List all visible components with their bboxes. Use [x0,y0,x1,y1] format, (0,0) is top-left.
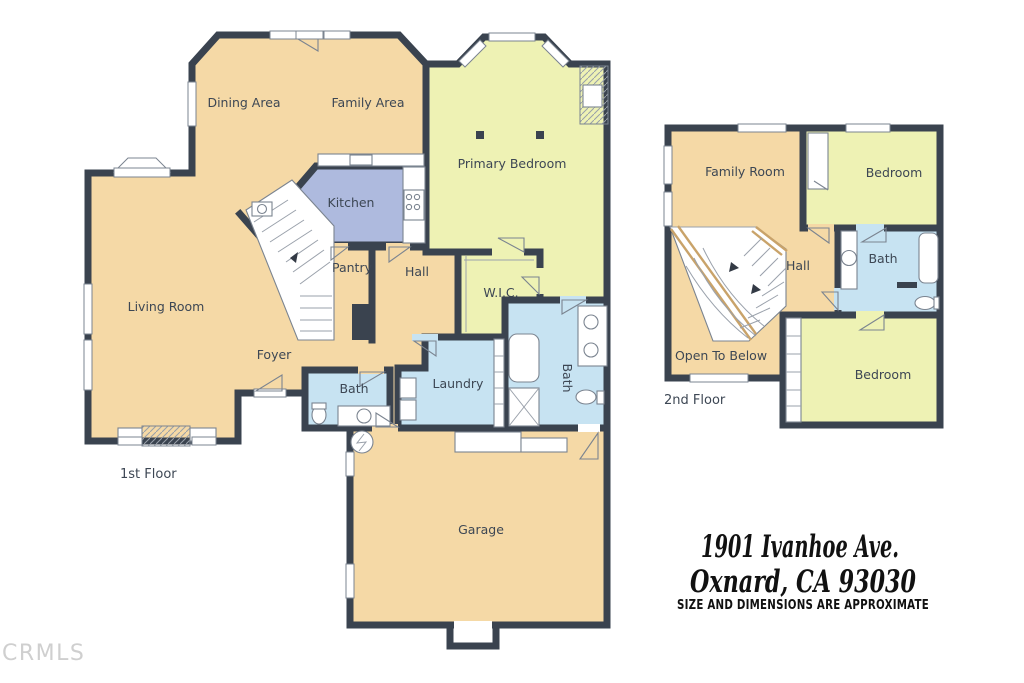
door-family-top [296,31,323,39]
room-label-primary-bedroom: Primary Bedroom [458,156,567,171]
room-label-bedroom-upper: Bedroom [866,165,923,180]
address-line-2: Oxnard, CA 93030 [690,564,916,600]
window-bay-top [489,33,535,41]
window-dining-left [188,82,196,126]
address-line-1: 1901 Ivanhoe Ave. [701,529,899,565]
crmls-watermark: CRMLS [2,641,85,666]
window-living-left-2 [84,340,92,390]
bath-upper-toilet [915,297,935,310]
washer [400,378,416,398]
floor-plan-page: Dining Area Family Area Kitchen Primary … [0,0,1024,683]
door-gap-garage-right [578,424,600,432]
window-family-room-left-2 [664,192,672,226]
window-living-bottom-2 [192,437,216,445]
window-living-left-1 [84,284,92,334]
floor-plan-drawing: Dining Area Family Area Kitchen Primary … [0,0,1024,683]
window-dining-top-2 [324,31,350,39]
garage-shelf-2 [521,438,567,452]
window-garage-left-2 [346,564,354,598]
kitchen-sink [350,155,372,165]
window-garage-left-1 [346,452,354,476]
bath-2-toilet [576,390,596,404]
room-label-dining-area: Dining Area [207,95,280,110]
bedroom-upper-closet [808,133,828,189]
door-gap-bath-1 [358,366,384,374]
front-door-gap [254,389,286,397]
floor-label-2nd: 2nd Floor [664,393,726,408]
first-floor-plan [84,31,608,646]
window-living-bottom-1 [118,437,142,445]
room-label-bath-2: Bath [560,363,575,392]
room-label-hall-2: Hall [786,258,810,273]
bath-upper-vanity [841,231,857,289]
room-label-pantry: Pantry [332,260,373,275]
garage-shelf-1 [455,432,521,452]
disclaimer-text: SIZE AND DIMENSIONS ARE APPROXIMATE [677,597,929,613]
room-label-wic: W.I.C. [483,285,518,300]
room-label-bath-1: Bath [339,381,368,396]
room-label-garage: Garage [458,522,504,537]
room-label-foyer: Foyer [257,347,292,362]
bath-2-tub [509,334,539,382]
room-label-living-room: Living Room [128,299,205,314]
room-label-family-room: Family Room [705,164,785,179]
bath-upper-wall-stub [897,282,917,288]
room-label-hall-1: Hall [405,264,429,279]
living-fireplace [142,426,190,446]
dryer [400,400,416,420]
wall-stair-block [352,304,374,340]
window-dining-top-1 [270,31,296,39]
window-family-room-left-1 [664,146,672,184]
floor-label-1st: 1st Floor [120,467,177,482]
room-label-open-to-below: Open To Below [675,348,767,363]
room-label-family-area: Family Area [332,95,405,110]
bedroom-post-left [476,131,484,139]
room-label-bedroom-lower: Bedroom [855,367,912,382]
laundry-closet [494,339,504,427]
window-bedroom-upper-top [846,124,890,132]
door-gap-wic [536,268,544,294]
bedroom-post-right [536,131,544,139]
bath-upper-tub [919,233,938,283]
window-open-below-bottom [690,374,748,382]
door-gap-laundry [412,334,438,341]
window-family-room-top [738,124,786,132]
garage-step-opening [454,621,492,629]
door-gap-bath-upper-top [856,224,884,232]
room-label-laundry: Laundry [433,376,485,391]
room-label-kitchen: Kitchen [328,195,375,210]
room-label-bath-upper: Bath [868,251,897,266]
